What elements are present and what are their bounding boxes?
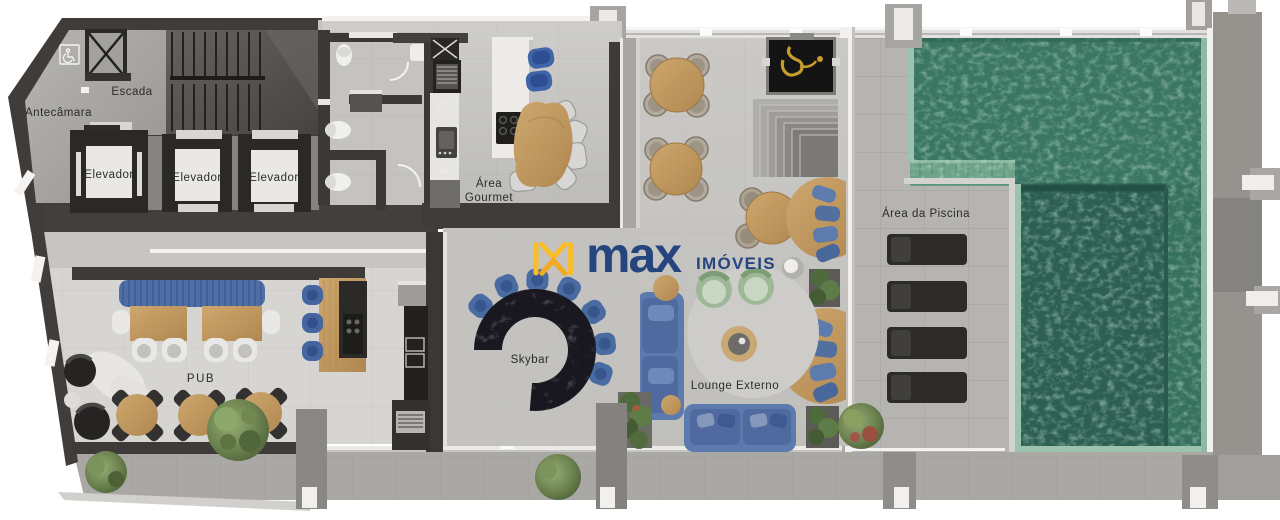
svg-text:Área: Área [476,177,502,190]
svg-text:Área da Piscina: Área da Piscina [882,207,970,220]
svg-text:Elevador: Elevador [84,169,133,181]
svg-text:Lounge Externo: Lounge Externo [691,380,779,392]
svg-text:Skybar: Skybar [511,354,550,366]
svg-text:Elevador: Elevador [249,172,298,184]
svg-text:Antecâmara: Antecâmara [25,107,92,119]
svg-text:PUB: PUB [187,373,215,385]
svg-text:Escada: Escada [111,86,152,98]
svg-text:IMÓVEIS: IMÓVEIS [696,254,776,273]
svg-text:max: max [586,227,682,283]
svg-text:Elevador: Elevador [172,172,221,184]
svg-text:Gourmet: Gourmet [465,192,514,204]
